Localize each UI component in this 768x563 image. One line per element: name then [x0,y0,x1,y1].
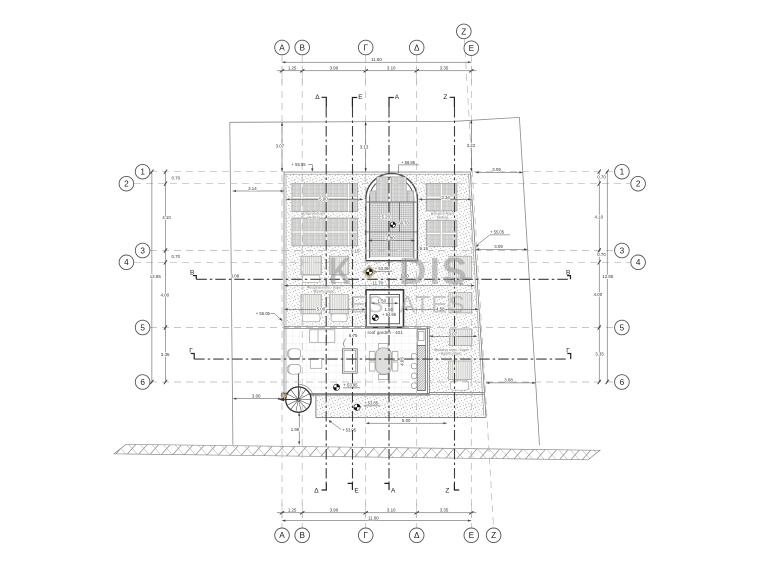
svg-text:4.10: 4.10 [162,215,171,220]
svg-text:Δ: Δ [414,531,420,540]
svg-text:3.35: 3.35 [161,352,170,357]
svg-text:B: B [566,270,570,277]
svg-text:3.35: 3.35 [595,352,604,357]
svg-text:3.13: 3.13 [360,145,369,150]
svg-text:1.25: 1.25 [288,66,297,71]
svg-text:D: D [399,251,426,293]
svg-text:B: B [299,43,305,52]
svg-text:6: 6 [140,378,145,387]
svg-text:5: 5 [140,323,145,332]
svg-text:5.20: 5.20 [382,215,391,220]
svg-text:S: S [442,251,467,293]
svg-text:1.98: 1.98 [291,427,300,432]
svg-text:3: 3 [620,246,625,255]
svg-text:2: 2 [636,180,641,189]
svg-text:5.00: 5.00 [319,197,328,202]
svg-text:4.00: 4.00 [594,292,603,297]
svg-text:+ 53.95: + 53.95 [343,383,358,388]
svg-text:4.10: 4.10 [595,214,604,219]
svg-text:+ 53.95: + 53.95 [342,427,357,432]
svg-text:12.85: 12.85 [602,274,614,279]
svg-text:A: A [279,43,285,52]
svg-text:0.70: 0.70 [597,175,606,180]
svg-text:A: A [279,531,285,540]
svg-text:Γ: Γ [189,348,193,355]
svg-text:3.35: 3.35 [440,66,449,71]
svg-text:0.70: 0.70 [172,176,181,181]
svg-text:+ 53.95: + 53.95 [375,266,390,271]
svg-text:B: B [299,531,305,540]
svg-text:11.70: 11.70 [372,281,383,286]
svg-text:+ 55.05: + 55.05 [292,162,307,167]
svg-text:3.90: 3.90 [330,508,339,513]
svg-text:Hedera: Hedera [437,215,448,219]
svg-text:E: E [354,488,359,495]
svg-text:roof garden - 401: roof garden - 401 [368,330,404,335]
svg-text:K: K [329,251,351,293]
svg-text:Z: Z [445,488,449,495]
svg-text:1: 1 [620,168,625,177]
svg-text:+ 55.05: + 55.05 [490,230,505,235]
svg-text:2.80: 2.80 [386,236,395,241]
svg-text:5: 5 [620,323,625,332]
svg-text:B: B [190,270,194,277]
svg-text:ESTATES: ESTATES [350,292,466,319]
svg-text:3.22: 3.22 [467,143,476,148]
svg-text:E: E [358,94,363,101]
svg-text:0.70: 0.70 [597,252,606,257]
svg-text:+ 53.85: + 53.85 [364,401,379,406]
svg-text:E: E [469,531,475,540]
svg-text:12.85: 12.85 [150,274,162,279]
svg-text:3.35: 3.35 [440,508,449,513]
svg-text:Δ: Δ [315,94,320,101]
svg-text:5.00: 5.00 [402,418,411,423]
svg-text:56.70: 56.70 [398,220,409,225]
svg-text:4: 4 [636,258,641,267]
svg-text:1.25: 1.25 [288,508,297,513]
svg-text:A: A [395,94,400,101]
svg-text:3: 3 [140,246,145,255]
svg-text:Z: Z [443,94,447,101]
svg-text:1: 1 [140,168,145,177]
svg-text:3.00: 3.00 [252,394,261,399]
svg-text:+ 56.95: + 56.95 [401,160,416,165]
svg-text:3.08: 3.08 [504,378,513,383]
svg-text:3.90: 3.90 [330,66,339,71]
svg-text:3.10: 3.10 [387,508,396,513]
svg-text:2: 2 [124,180,129,189]
svg-text:Δ: Δ [414,43,420,52]
svg-text:A: A [391,488,396,495]
svg-text:11.60: 11.60 [371,57,382,62]
svg-text:Δ: Δ [314,488,319,495]
svg-text:11.60: 11.60 [368,516,379,521]
svg-text:Γ: Γ [363,531,368,540]
svg-text:E: E [469,44,475,53]
svg-text:9.15: 9.15 [351,249,360,254]
svg-text:3.07: 3.07 [449,331,458,336]
svg-text:4.00: 4.00 [161,293,170,298]
svg-text:Z: Z [491,531,496,540]
svg-text:5.00: 5.00 [317,307,326,312]
svg-text:3.34: 3.34 [441,195,450,200]
svg-text:6.75: 6.75 [349,333,358,338]
svg-text:3.08: 3.08 [231,273,240,278]
svg-text:4: 4 [124,258,129,267]
svg-text:3.09: 3.09 [492,167,501,172]
svg-text:θεραπευτήριο: θεραπευτήριο [441,352,462,356]
svg-text:3.07: 3.07 [276,144,285,149]
svg-text:6: 6 [620,378,625,387]
svg-text:4.05: 4.05 [400,357,405,366]
svg-text:+ 55.05: + 55.05 [256,311,271,316]
svg-text:Hedera: Hedera [307,215,318,219]
svg-text:3.14: 3.14 [248,186,257,191]
svg-text:3.09: 3.09 [494,244,503,249]
svg-text:3.10: 3.10 [387,66,396,71]
svg-text:I: I [430,251,441,293]
svg-text:Γ: Γ [363,43,368,52]
svg-text:0.70: 0.70 [172,254,181,259]
svg-text:Z: Z [461,27,466,36]
svg-text:Γ: Γ [566,348,570,355]
